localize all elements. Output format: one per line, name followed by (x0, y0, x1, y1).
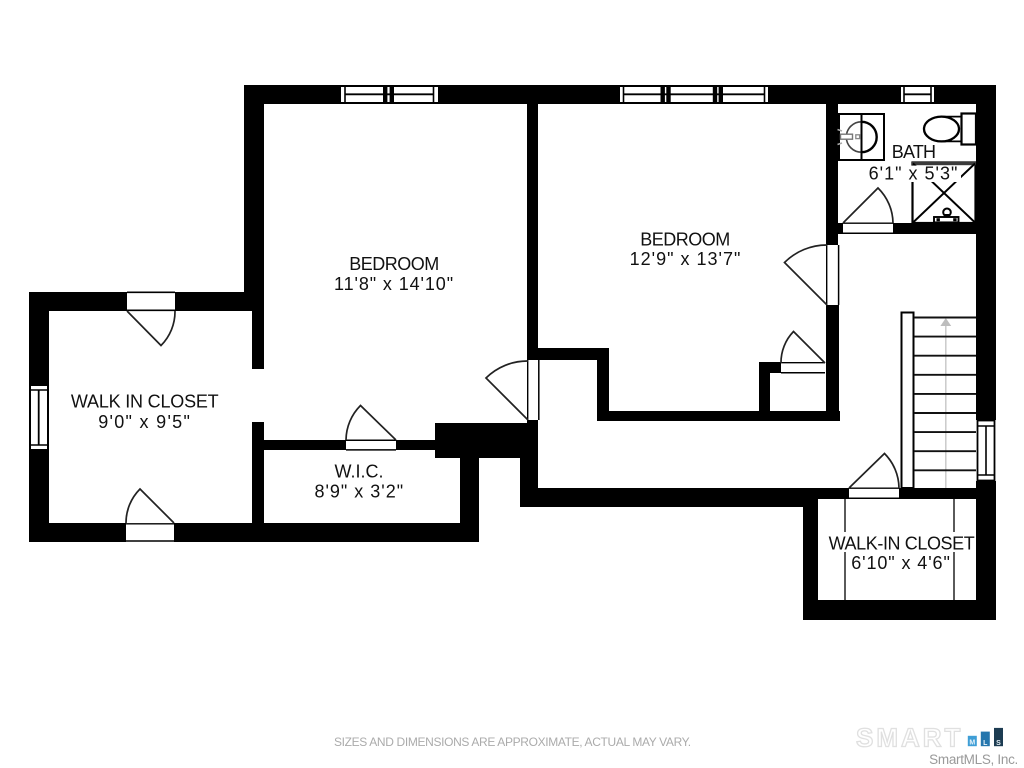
svg-text:6'1" x 5'3": 6'1" x 5'3" (869, 164, 959, 184)
svg-text:WALK IN CLOSET: WALK IN CLOSET (71, 392, 219, 412)
svg-text:11'8" x 14'10": 11'8" x 14'10" (334, 274, 454, 294)
svg-text:12'9" x 13'7": 12'9" x 13'7" (630, 249, 742, 269)
svg-text:BEDROOM: BEDROOM (349, 254, 439, 274)
svg-text:9'0" x 9'5": 9'0" x 9'5" (98, 412, 191, 432)
svg-text:SMART: SMART (856, 723, 963, 753)
svg-text:M: M (969, 740, 975, 747)
svg-text:WALK-IN CLOSET: WALK-IN CLOSET (829, 533, 975, 553)
svg-text:BEDROOM: BEDROOM (640, 230, 730, 250)
svg-text:S: S (996, 740, 1001, 747)
svg-text:SmartMLS, Inc.: SmartMLS, Inc. (929, 752, 1018, 767)
svg-text:SIZES AND DIMENSIONS ARE APPRO: SIZES AND DIMENSIONS ARE APPROXIMATE, AC… (334, 735, 691, 749)
svg-text:8'9" x 3'2": 8'9" x 3'2" (314, 482, 404, 502)
svg-text:W.I.C.: W.I.C. (335, 461, 384, 481)
svg-text:6'10" x 4'6": 6'10" x 4'6" (851, 553, 951, 573)
svg-text:L: L (983, 740, 988, 747)
svg-text:BATH: BATH (892, 142, 935, 162)
